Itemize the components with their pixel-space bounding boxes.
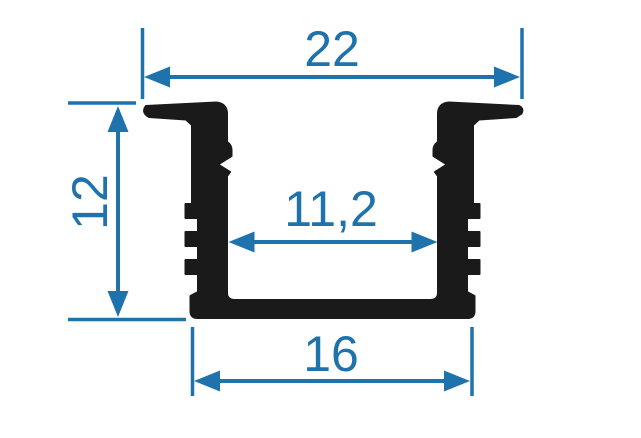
dimension-overall-width: 22 xyxy=(143,21,523,99)
dimension-height: 12 xyxy=(62,103,186,320)
dimension-label-height: 12 xyxy=(62,174,118,230)
arrowhead-down xyxy=(108,291,129,317)
dimension-label-base-width: 16 xyxy=(303,326,359,382)
dimension-inner-width: 11,2 xyxy=(229,181,438,253)
technical-drawing-canvas: 22 12 11,2 16 xyxy=(0,0,641,438)
arrowhead-up xyxy=(108,106,129,132)
dimension-label-inner-width: 11,2 xyxy=(284,181,378,237)
arrowhead-right xyxy=(412,232,438,253)
arrowhead-left xyxy=(229,232,255,253)
arrowhead-right xyxy=(494,67,520,88)
arrowhead-right xyxy=(444,371,470,392)
led-profile-dimension-drawing: 22 12 11,2 16 xyxy=(0,0,641,438)
dimension-base-width: 16 xyxy=(193,326,473,396)
arrowhead-left xyxy=(194,371,220,392)
dimension-label-overall-width: 22 xyxy=(304,21,360,77)
arrowhead-left xyxy=(144,67,170,88)
